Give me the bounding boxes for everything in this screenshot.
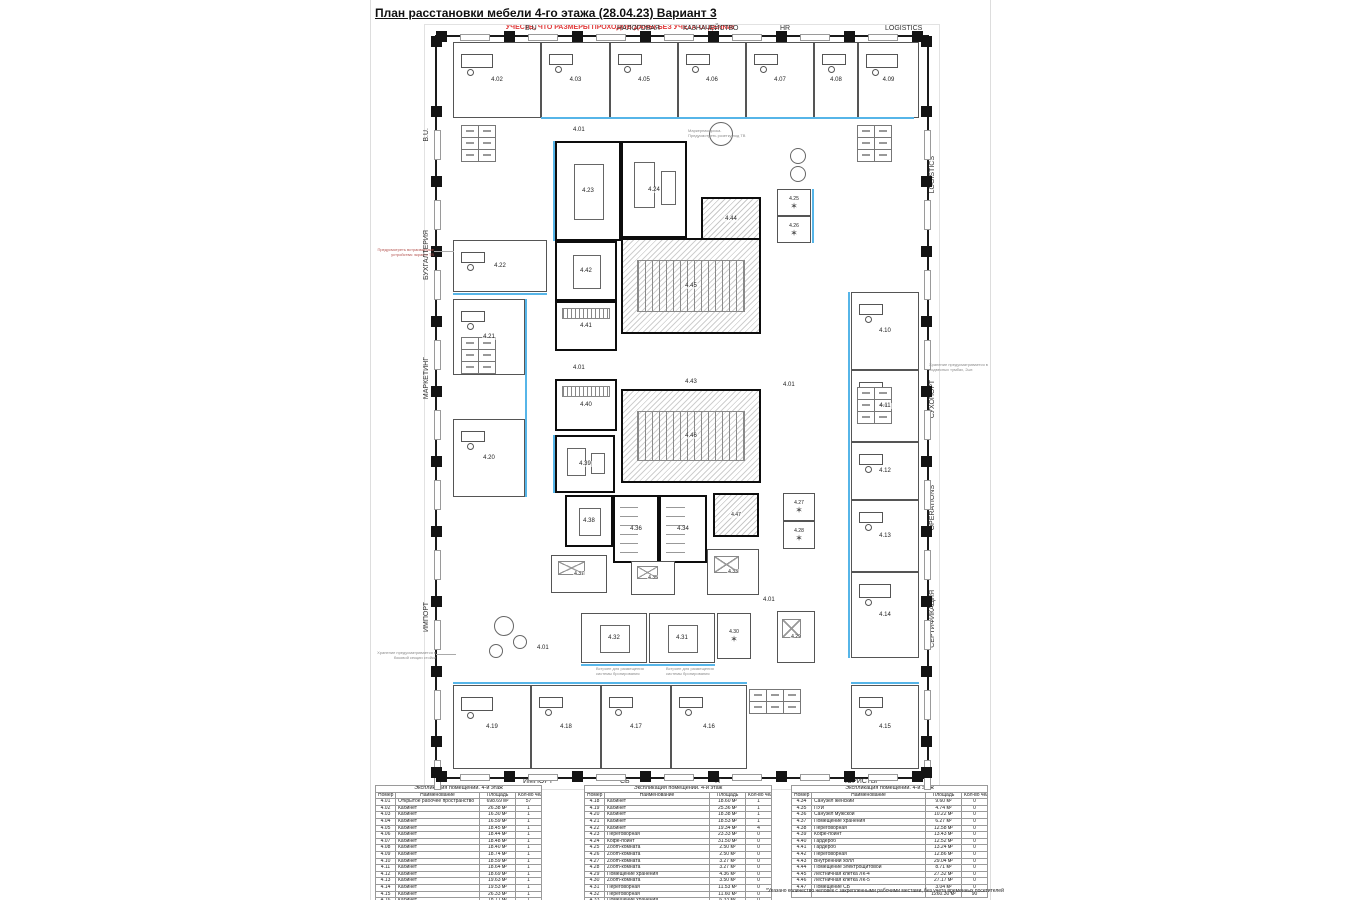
- table-row: 4.06Кабинет18.44 м²1: [376, 832, 542, 839]
- table-row: 4.07Кабинет18.48 м²1: [376, 838, 542, 845]
- room-4.27: 4.27✶: [783, 493, 815, 521]
- table-row: 4.13Кабинет19.63 м²1: [376, 878, 542, 885]
- round-table-icon: [790, 148, 806, 164]
- room-label: 4.41: [579, 323, 593, 329]
- table-row: 4.43Внутренний холл29.04 м²0: [792, 858, 988, 865]
- column: [921, 176, 932, 187]
- table-header: Кол-во чел.*: [961, 792, 987, 799]
- column: [921, 36, 932, 47]
- window-glyph: [800, 34, 830, 41]
- room-label: 4.38: [582, 518, 596, 524]
- desk-icon: [822, 54, 846, 65]
- table-row: 4.32Переговорная11.60 м²0: [585, 891, 772, 898]
- table-row: 4.04Кабинет16.59 м²1: [376, 818, 542, 825]
- column: [776, 771, 787, 782]
- room-label: 4.22: [493, 263, 507, 269]
- sheet-frame-right: [990, 0, 991, 900]
- bench-desk-cell: [783, 701, 801, 714]
- window-glyph: [434, 200, 441, 230]
- room-label: 4.32: [607, 635, 621, 641]
- column: [776, 31, 787, 42]
- room-label: 4.33: [727, 569, 739, 575]
- bench-desk-cell: [857, 149, 875, 162]
- room-4.32: 4.32: [581, 613, 647, 663]
- table-row: 4.09Кабинет18.74 м²1: [376, 851, 542, 858]
- column: [431, 316, 442, 327]
- column: [431, 36, 442, 47]
- window-glyph: [434, 620, 441, 650]
- room-label: 4.05: [637, 77, 651, 83]
- round-table-icon: ✶: [790, 229, 798, 237]
- table-header: Кол-во чел.*: [515, 792, 541, 799]
- bench-desks: [461, 337, 495, 373]
- glazing-line: [453, 682, 747, 684]
- window-glyph: [924, 620, 931, 650]
- room-label: 4.37: [573, 571, 585, 577]
- room-4.44: 4.44: [701, 197, 761, 241]
- glazing-line: [812, 189, 814, 243]
- dept-label-left: МАРКЕТИНГ: [423, 357, 430, 399]
- chair-icon: [467, 264, 474, 271]
- annotation-booking-note-1: Встроен для размещения системы бронирова…: [596, 666, 652, 676]
- window-glyph: [434, 550, 441, 580]
- bench-desks: [857, 387, 891, 423]
- window-glyph: [434, 690, 441, 720]
- window-glyph: [434, 130, 441, 160]
- column: [431, 596, 442, 607]
- page-title: План расстановки мебели 4-го этажа (28.0…: [375, 6, 717, 20]
- room-label: 4.34: [676, 526, 690, 532]
- room-label: 4.39: [578, 461, 592, 467]
- table-header: Наименование: [605, 792, 710, 799]
- bench-desk-cell: [857, 411, 875, 424]
- table-row: 4.12Кабинет18.69 м²1: [376, 871, 542, 878]
- room-4.24: 4.24: [621, 141, 687, 238]
- window-glyph: [732, 774, 762, 781]
- window-glyph: [434, 270, 441, 300]
- glazing-line: [525, 299, 527, 497]
- dept-label-left: B.U.: [423, 128, 430, 142]
- table-footnote: *Указано количество человек с закрепленн…: [766, 888, 1004, 894]
- table-row: 4.18Кабинет18.60 м²1: [585, 799, 772, 806]
- table-row: 4.23Переговорная23.33 м²0: [585, 832, 772, 839]
- desk-icon: [679, 697, 703, 708]
- room-label: 4.03: [569, 77, 583, 83]
- column: [504, 31, 515, 42]
- table-row: 4.03Кабинет16.30 м²1: [376, 812, 542, 819]
- table-row: 4.14Кабинет19.53 м²1: [376, 884, 542, 891]
- round-table-icon: ✶: [795, 506, 803, 514]
- room-label: 4.42: [579, 268, 593, 274]
- room-label: 4.07: [773, 77, 787, 83]
- table-row: 4.19Кабинет25.36 м²1: [585, 805, 772, 812]
- room-4.29: 4.29: [777, 611, 815, 663]
- table-row: 4.11Кабинет18.64 м²1: [376, 865, 542, 872]
- room-4.34: 4.34: [659, 495, 707, 563]
- table-header: Площадь: [709, 792, 745, 799]
- drawing-sheet: План расстановки мебели 4-го этажа (28.0…: [0, 0, 1360, 900]
- bench-desks: [749, 689, 800, 713]
- annotation-storage-note-left: Хранение предусматривается в боковой сек…: [376, 650, 436, 660]
- dept-label-left: ИМПОРТ: [423, 602, 430, 632]
- room-4.47: 4.47: [713, 493, 759, 537]
- column: [431, 176, 442, 187]
- glazing-line: [541, 117, 914, 119]
- table-row: 4.05Кабинет18.45 м²1: [376, 825, 542, 832]
- annotation-tv-note: Предусмотреть встраиваемые устройства: э…: [372, 247, 434, 257]
- column: [921, 596, 932, 607]
- table-title: Экспликация помещений. 4-й этаж: [376, 786, 542, 793]
- table-row: 4.25Zoom-комната2.50 м²0: [585, 845, 772, 852]
- table-row: 4.08Кабинет18.40 м²1: [376, 845, 542, 852]
- room-label: 4.44: [724, 216, 738, 222]
- column: [431, 666, 442, 677]
- bench-desk-cell: [461, 361, 479, 374]
- column: [921, 456, 932, 467]
- annotation-leader: [434, 251, 454, 252]
- column: [921, 666, 932, 677]
- round-table-icon: ✶: [795, 534, 803, 542]
- room-4.23: 4.23: [555, 141, 621, 241]
- room-label: 4.40: [579, 402, 593, 408]
- table-header: Кол-во чел.*: [745, 792, 771, 799]
- column: [504, 771, 515, 782]
- desk-icon: [461, 431, 485, 442]
- desk-icon: [859, 697, 883, 708]
- room-4.35: 4.35: [631, 561, 675, 595]
- table-row: 4.42Переговорная12.86 м²0: [792, 851, 988, 858]
- room-4.13: 4.13: [851, 500, 919, 572]
- window-glyph: [528, 774, 558, 781]
- room-label: 4.06: [705, 77, 719, 83]
- table-header: Наименование: [812, 792, 926, 799]
- window-glyph: [434, 340, 441, 370]
- room-4.40: 4.40: [555, 379, 617, 431]
- round-table-icon: [790, 166, 806, 182]
- room-label: 4.24: [647, 187, 661, 193]
- chair-icon: [865, 466, 872, 473]
- glazing-line: [553, 141, 555, 241]
- bench-desks: [857, 125, 891, 161]
- window-glyph: [528, 34, 558, 41]
- column: [431, 106, 442, 117]
- table-row: 4.41Гардероб13.24 м²0: [792, 845, 988, 852]
- chair-icon: [692, 66, 699, 73]
- room-label: 4.29: [790, 634, 802, 640]
- window-glyph: [924, 410, 931, 440]
- chair-icon: [865, 599, 872, 606]
- column: [921, 106, 932, 117]
- chair-icon: [467, 443, 474, 450]
- chair-icon: [624, 66, 631, 73]
- table-title: Экспликация помещений. 4-й этаж: [792, 786, 988, 793]
- room-4.39: 4.39: [555, 435, 615, 493]
- table-row: 4.44Помещение электрощитовой8.71 м²0: [792, 865, 988, 872]
- column: [431, 767, 442, 778]
- bench-desks: [461, 125, 495, 161]
- room-label: 4.16: [702, 724, 716, 730]
- annotation-booking-note-2: Встроен для размещения системы бронирова…: [666, 666, 722, 676]
- window-glyph: [924, 480, 931, 510]
- table-header: Площадь: [925, 792, 961, 799]
- open-space-label: 4.01: [573, 127, 585, 133]
- table-row: 4.10Кабинет18.59 м²1: [376, 858, 542, 865]
- desk-icon: [461, 252, 485, 263]
- explication-table-2: Экспликация помещений. 4-й этажНомерНаим…: [584, 785, 772, 900]
- table-row: 4.15Кабинет26.33 м²1: [376, 891, 542, 898]
- room-4.45: 4.45: [621, 238, 761, 334]
- column: [921, 736, 932, 747]
- room-4.26: 4.26✶: [777, 216, 811, 243]
- room-4.28: 4.28✶: [783, 521, 815, 549]
- table-row: 4.30Zoom-комната3.50 м²0: [585, 878, 772, 885]
- table-row: 4.29Помещение хранения4.36 м²0: [585, 871, 772, 878]
- room-4.30: 4.30✶: [717, 613, 751, 659]
- window-glyph: [924, 130, 931, 160]
- table-row: 4.01Открытое рабочее пространство698.69 …: [376, 799, 542, 806]
- room-4.41: 4.41: [555, 301, 617, 351]
- column: [431, 526, 442, 537]
- table-row: 4.34Санузел женский9.60 м²0: [792, 799, 988, 806]
- table-header: Номер: [792, 792, 812, 799]
- room-label: 4.10: [878, 328, 892, 334]
- window-glyph: [434, 480, 441, 510]
- room-4.37: 4.37: [551, 555, 607, 593]
- column: [921, 767, 932, 778]
- chair-icon: [615, 709, 622, 716]
- room-label: 4.14: [878, 612, 892, 618]
- glazing-line: [851, 682, 919, 684]
- table-row: 4.31Переговорная11.53 м²0: [585, 884, 772, 891]
- table-row: 4.45Лестничная клетка ЛК-427.32 м²0: [792, 871, 988, 878]
- column: [640, 31, 651, 42]
- table-row: 4.26Zoom-комната2.50 м²0: [585, 851, 772, 858]
- chair-icon: [467, 69, 474, 76]
- chair-icon: [555, 66, 562, 73]
- desk-icon: [859, 512, 883, 523]
- window-glyph: [868, 34, 898, 41]
- room-4.38: 4.38: [565, 495, 613, 547]
- window-glyph: [664, 34, 694, 41]
- glazing-line: [453, 293, 547, 295]
- room-label: 4.35: [647, 575, 659, 581]
- chair-icon: [545, 709, 552, 716]
- desk-icon: [866, 54, 898, 68]
- window-glyph: [924, 690, 931, 720]
- column: [431, 456, 442, 467]
- room-4.46: 4.46: [621, 389, 761, 483]
- window-glyph: [924, 270, 931, 300]
- room-label: 4.09: [882, 77, 896, 83]
- desk-icon: [859, 454, 883, 465]
- column: [844, 31, 855, 42]
- window-glyph: [732, 34, 762, 41]
- room-label: 4.47: [730, 512, 742, 518]
- table-row: 4.22Кабинет19.34 м²4: [585, 825, 772, 832]
- window-glyph: [460, 34, 490, 41]
- room-label: 4.15: [878, 724, 892, 730]
- column: [708, 31, 719, 42]
- bench-desk-cell: [461, 149, 479, 162]
- room-label: 4.02: [490, 77, 504, 83]
- room-label: 4.46: [684, 433, 698, 439]
- annotation-storage-note-right: Хранение предусматривается в подвесных т…: [929, 362, 991, 372]
- room-label: 4.43: [684, 379, 698, 385]
- room-4.42: 4.42: [555, 241, 617, 301]
- chair-icon: [865, 709, 872, 716]
- desk-icon: [461, 697, 493, 711]
- table-row: 4.21Кабинет18.53 м²1: [585, 818, 772, 825]
- column: [921, 246, 932, 257]
- column: [431, 386, 442, 397]
- table-header: Номер: [585, 792, 605, 799]
- round-table-icon: ✶: [730, 635, 738, 643]
- room-4.31: 4.31: [649, 613, 715, 663]
- room-label: 4.20: [482, 455, 496, 461]
- desk-icon: [618, 54, 642, 65]
- dept-label-top: B.U: [525, 25, 537, 32]
- table-row: 4.37Помещение хранения6.27 м²0: [792, 818, 988, 825]
- column: [572, 771, 583, 782]
- chair-icon: [865, 316, 872, 323]
- chair-icon: [865, 524, 872, 531]
- table-row: 4.27Zoom-комната3.27 м²0: [585, 858, 772, 865]
- room-label: 4.19: [485, 724, 499, 730]
- room-label: 4.45: [684, 283, 698, 289]
- desk-icon: [461, 311, 485, 322]
- column: [640, 771, 651, 782]
- bench-desk-cell: [874, 149, 892, 162]
- desk-icon: [461, 54, 493, 68]
- round-table-icon: [494, 616, 514, 636]
- round-table-icon: ✶: [790, 202, 798, 210]
- column: [921, 316, 932, 327]
- desk-icon: [609, 697, 633, 708]
- desk-icon: [539, 697, 563, 708]
- room-label: 4.31: [675, 635, 689, 641]
- chair-icon: [760, 66, 767, 73]
- room-label: 4.36: [629, 526, 643, 532]
- annotation-leader: [436, 654, 456, 655]
- room-label: 4.13: [878, 533, 892, 539]
- column: [921, 526, 932, 537]
- table-row: 4.02Кабинет26.38 м²1: [376, 805, 542, 812]
- desk-icon: [754, 54, 778, 65]
- table-row: 4.35ПУИ4.74 м²0: [792, 805, 988, 812]
- open-space-label: 4.01: [763, 597, 775, 603]
- open-space-label: 4.01: [783, 382, 795, 388]
- bench-desk-cell: [478, 361, 496, 374]
- table-header: Наименование: [396, 792, 480, 799]
- table-row: 4.20Кабинет18.38 м²1: [585, 812, 772, 819]
- room-4.25: 4.25✶: [777, 189, 811, 216]
- bench-desk-cell: [749, 701, 767, 714]
- window-glyph: [664, 774, 694, 781]
- column: [708, 771, 719, 782]
- glazing-line: [848, 292, 850, 658]
- window-glyph: [924, 550, 931, 580]
- desk-icon: [686, 54, 710, 65]
- sheet-frame-left: [370, 0, 371, 900]
- table-header: Площадь: [479, 792, 515, 799]
- bench-desk-cell: [766, 701, 784, 714]
- dept-label-right: LOGISTICS: [929, 156, 936, 193]
- window-glyph: [800, 774, 830, 781]
- table-row: 4.36Санузел мужской10.22 м²0: [792, 812, 988, 819]
- desk-icon: [859, 584, 891, 598]
- chair-icon: [872, 69, 879, 76]
- column: [572, 31, 583, 42]
- chair-icon: [467, 712, 474, 719]
- explication-table-1: Экспликация помещений. 4-й этажНомерНаим…: [375, 785, 542, 900]
- chair-icon: [685, 709, 692, 716]
- round-table-icon: [489, 644, 503, 658]
- table-title: Экспликация помещений. 4-й этаж: [585, 786, 772, 793]
- window-glyph: [868, 774, 898, 781]
- table-row: 4.40Гардероб12.52 м²0: [792, 838, 988, 845]
- room-4.12: 4.12: [851, 442, 919, 500]
- explication-table-3: Экспликация помещений. 4-й этажНомерНаим…: [791, 785, 988, 898]
- table-row: 4.39Кофе-поинт13.43 м²0: [792, 832, 988, 839]
- column: [431, 736, 442, 747]
- round-table-icon: [513, 635, 527, 649]
- window-glyph: [460, 774, 490, 781]
- table-header: Номер: [376, 792, 396, 799]
- window-glyph: [596, 34, 626, 41]
- room-label: 4.08: [829, 77, 843, 83]
- window-glyph: [434, 410, 441, 440]
- open-space-label: 4.01: [537, 645, 549, 651]
- room-label: 4.23: [581, 188, 595, 194]
- chair-icon: [467, 323, 474, 330]
- table-row: 4.38Переговорная12.58 м²0: [792, 825, 988, 832]
- table-row: 4.46Лестничная клетка ЛК-527.17 м²0: [792, 878, 988, 885]
- desk-icon: [859, 304, 883, 315]
- dept-label-top: НАЛОГОВАЯ: [617, 25, 660, 32]
- bench-desk-cell: [478, 149, 496, 162]
- window-glyph: [924, 200, 931, 230]
- chair-icon: [828, 66, 835, 73]
- table-row: 4.28Zoom-комната3.27 м²0: [585, 865, 772, 872]
- window-glyph: [596, 774, 626, 781]
- room-label: 4.17: [629, 724, 643, 730]
- table-row: 4.24Кофе-поинт31.50 м²0: [585, 838, 772, 845]
- column: [844, 771, 855, 782]
- room-label: 4.18: [559, 724, 573, 730]
- glazing-line: [553, 435, 555, 493]
- bench-desk-cell: [874, 411, 892, 424]
- desk-icon: [549, 54, 573, 65]
- annotation-marker-board-note: Маркерная доска. Предусмотреть розетку п…: [688, 128, 746, 138]
- room-4.33: 4.33: [707, 549, 759, 595]
- column: [921, 386, 932, 397]
- room-label: 4.12: [878, 468, 892, 474]
- room-4.36: 4.36: [613, 495, 659, 563]
- open-space-label: 4.01: [573, 365, 585, 371]
